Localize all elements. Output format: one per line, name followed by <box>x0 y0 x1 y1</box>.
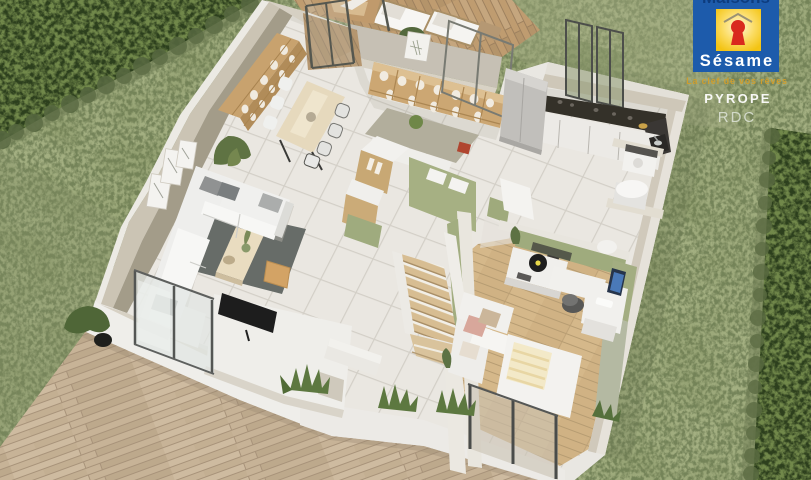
svg-text:RDC: RDC <box>718 109 757 126</box>
svg-text:Sésame: Sésame <box>700 52 774 70</box>
svg-text:La clef de vos rêves: La clef de vos rêves <box>686 76 788 86</box>
svg-text:Maisons: Maisons <box>702 0 770 7</box>
svg-text:PYROPE: PYROPE <box>704 91 771 106</box>
